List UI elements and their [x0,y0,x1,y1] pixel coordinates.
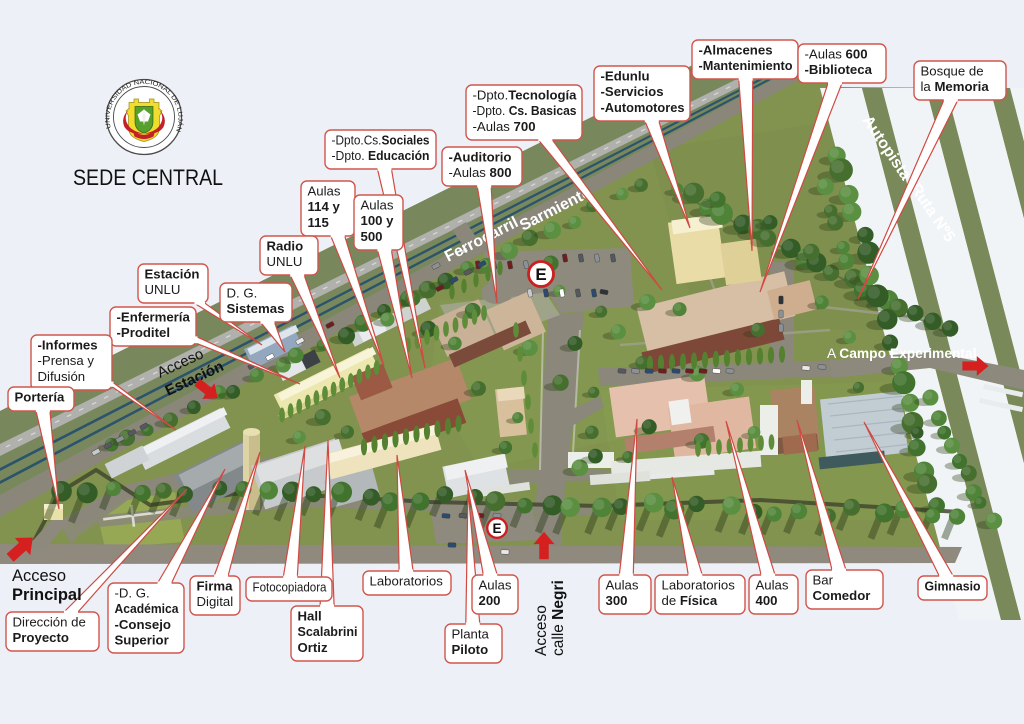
svg-text:Aulas: Aulas [361,198,394,213]
svg-text:Aulas: Aulas [606,578,639,593]
svg-text:-Consejo: -Consejo [115,617,171,632]
svg-text:Sistemas: Sistemas [227,301,285,316]
svg-text:Acceso: Acceso [533,605,550,656]
svg-text:Gimnasio: Gimnasio [925,579,981,594]
svg-text:Laboratorios: Laboratorios [662,578,736,593]
svg-text:-D. G.: -D. G. [115,586,150,601]
svg-text:SEDE CENTRAL: SEDE CENTRAL [73,166,223,191]
svg-text:Acceso: Acceso [12,567,66,585]
svg-text:-Edunlu: -Edunlu [601,69,650,84]
svg-text:-Biblioteca: -Biblioteca [805,62,873,77]
svg-text:Bosque de: Bosque de [921,64,984,79]
svg-text:Aulas: Aulas [756,578,789,593]
svg-text:-Prensa y: -Prensa y [38,353,95,368]
svg-text:-Mantenimiento: -Mantenimiento [699,58,793,73]
svg-text:-Informes: -Informes [38,338,98,353]
svg-text:-Servicios: -Servicios [601,84,664,99]
svg-text:Radio: Radio [267,239,304,254]
svg-text:-Almacenes: -Almacenes [699,43,773,58]
svg-text:-Automotores: -Automotores [601,100,685,115]
svg-text:115: 115 [308,215,329,230]
svg-text:Laboratorios: Laboratorios [370,574,444,589]
svg-text:-Dpto.Cs.Sociales: -Dpto.Cs.Sociales [332,133,430,148]
svg-text:Bar: Bar [813,573,834,588]
svg-text:Comedor: Comedor [813,588,871,603]
svg-text:Ortiz: Ortiz [298,640,328,655]
svg-text:Fotocopiadora: Fotocopiadora [253,580,328,595]
svg-text:-Aulas 700: -Aulas 700 [473,119,536,134]
svg-text:Estación: Estación [145,267,200,282]
svg-text:UNLU: UNLU [267,254,303,269]
svg-text:Portería: Portería [15,390,66,405]
svg-text:-Dpto. Educación: -Dpto. Educación [332,148,430,163]
svg-text:-Aulas 800: -Aulas 800 [449,165,512,180]
svg-text:Hall: Hall [298,609,322,624]
svg-text:Firma: Firma [197,579,234,594]
svg-text:A Campo Experimental: A Campo Experimental [827,346,977,361]
svg-text:Principal: Principal [12,586,82,604]
svg-text:-Dpto.Tecnología: -Dpto.Tecnología [473,88,578,103]
svg-text:Scalabrini: Scalabrini [298,624,358,639]
svg-text:la Memoria: la Memoria [921,79,990,94]
svg-text:300: 300 [606,593,628,608]
svg-text:-Aulas 600: -Aulas 600 [805,47,868,62]
svg-text:E: E [492,521,501,536]
svg-text:Superior: Superior [115,632,169,647]
svg-text:-Proditel: -Proditel [117,325,170,340]
svg-text:Aulas: Aulas [308,184,341,199]
svg-text:200: 200 [479,593,501,608]
svg-text:Proyecto: Proyecto [13,630,69,645]
svg-text:Difusión: Difusión [38,369,86,384]
svg-text:UNLU: UNLU [145,282,181,297]
svg-text:Digital: Digital [197,594,234,609]
svg-text:D. G.: D. G. [227,286,258,301]
svg-text:100 y: 100 y [361,213,395,228]
svg-text:Dirección de: Dirección de [13,615,86,630]
svg-text:Planta: Planta [452,627,490,642]
svg-text:-Auditorio: -Auditorio [449,150,512,165]
svg-text:Académica: Académica [115,601,180,616]
svg-text:calle Negri: calle Negri [550,580,567,656]
svg-text:-Enfermería: -Enfermería [117,310,191,325]
svg-text:400: 400 [756,593,778,608]
svg-text:-Dpto. Cs. Basicas: -Dpto. Cs. Basicas [473,103,577,118]
svg-text:114 y: 114 y [308,199,341,214]
svg-text:500: 500 [361,229,383,244]
svg-text:E: E [535,265,546,284]
svg-text:Piloto: Piloto [452,642,489,657]
svg-text:de Física: de Física [662,593,718,608]
svg-text:Aulas: Aulas [479,578,512,593]
